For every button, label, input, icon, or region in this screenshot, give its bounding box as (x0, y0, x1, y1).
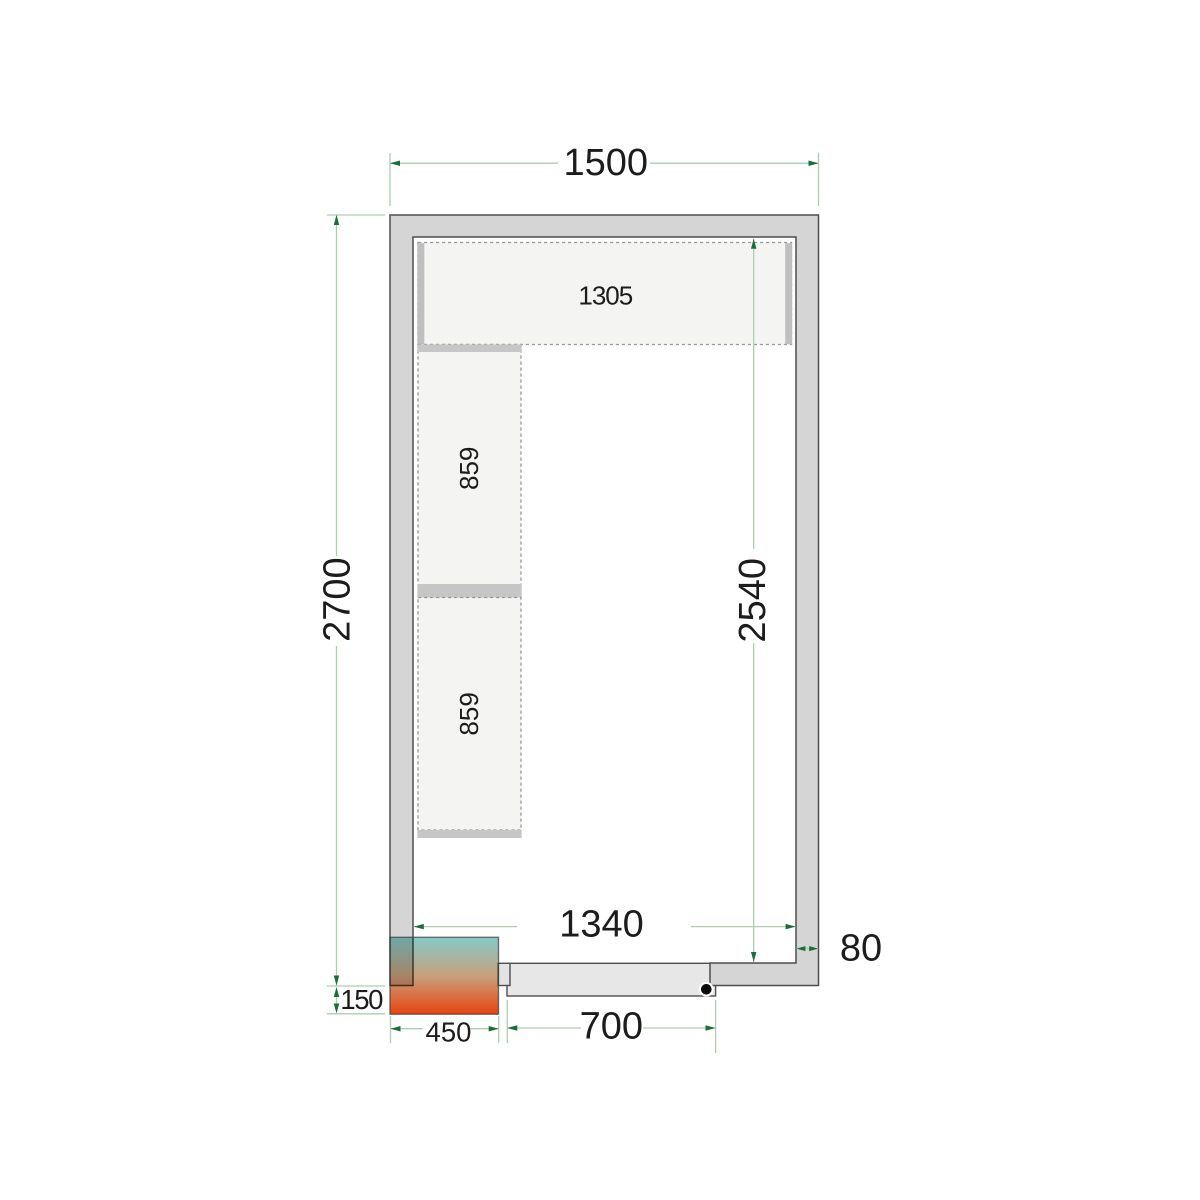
svg-text:80: 80 (840, 927, 882, 969)
svg-text:150: 150 (340, 984, 383, 1015)
svg-text:859: 859 (454, 692, 484, 735)
svg-text:2700: 2700 (316, 557, 358, 642)
svg-text:1500: 1500 (564, 142, 649, 184)
svg-text:1305: 1305 (578, 280, 632, 310)
svg-text:1340: 1340 (559, 904, 644, 946)
svg-text:859: 859 (454, 447, 484, 490)
svg-text:2540: 2540 (732, 558, 774, 643)
svg-text:450: 450 (426, 1016, 472, 1047)
svg-text:700: 700 (580, 1006, 643, 1048)
